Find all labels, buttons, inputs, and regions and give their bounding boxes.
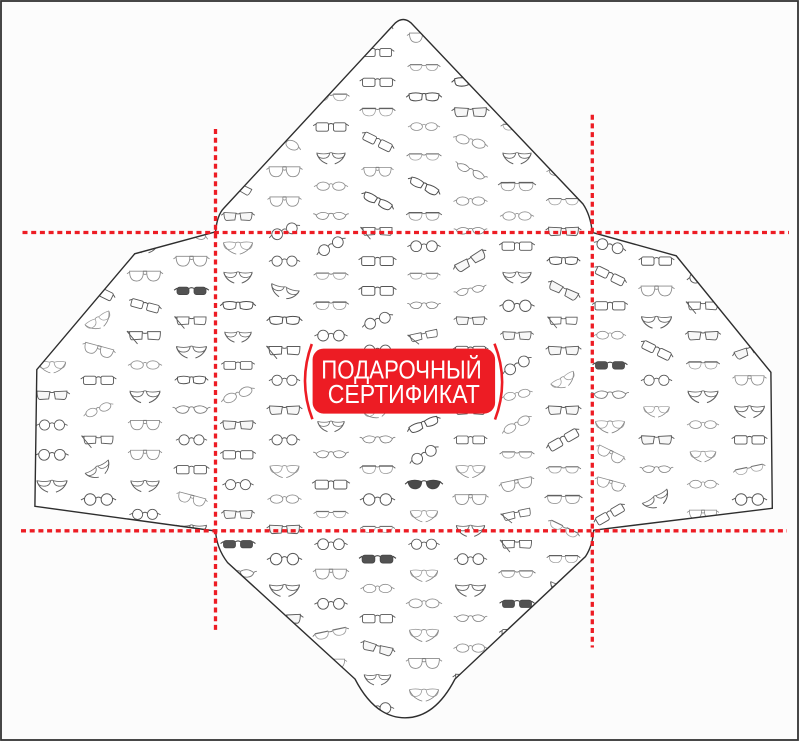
svg-text:СЕРТИФИКАТ: СЕРТИФИКАТ — [328, 379, 480, 409]
